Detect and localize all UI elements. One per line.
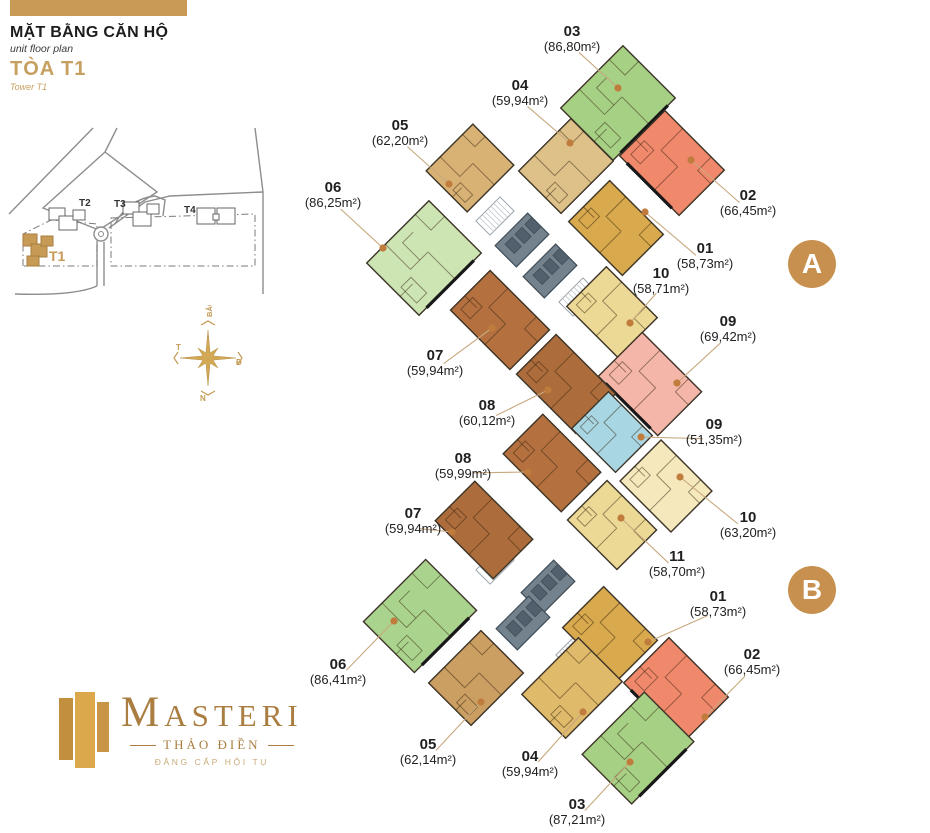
unit-dot-B-08	[524, 468, 531, 475]
unit-number-B-04: 04	[522, 748, 539, 765]
unit-dot-B-01	[644, 638, 651, 645]
unit-number-A-05: 05	[392, 117, 409, 134]
unit-number-A-07: 07	[427, 347, 444, 364]
unit-A-01	[569, 181, 664, 276]
unit-dot-M-09	[637, 433, 644, 440]
leader-line-A-08	[496, 390, 548, 416]
unit-number-A-01: 01	[697, 240, 714, 257]
unit-dot-A-07	[488, 324, 495, 331]
unit-area-B-04: (59,94m²)	[502, 764, 558, 779]
leader-line-B-01	[648, 616, 708, 642]
brand-logo: MASTERI THẢO ĐIỀN ĐẲNG CẤP HỘI TỤ	[57, 690, 303, 776]
unit-area-A-05: (62,20m²)	[372, 133, 428, 148]
unit-dot-B-03	[626, 758, 633, 765]
unit-number-A-06: 06	[325, 179, 342, 196]
unit-area-A-06: (86,25m²)	[305, 195, 361, 210]
wing-a-badge: A	[788, 240, 836, 288]
unit-number-B-01: 01	[710, 588, 727, 605]
floor-plan-page: MẶT BẰNG CĂN HỘ unit floor plan TÒA T1 T…	[0, 0, 930, 833]
unit-area-B-11: (58,70m²)	[649, 564, 705, 579]
unit-number-B-08: 08	[455, 450, 472, 467]
unit-dot-A-05	[445, 180, 452, 187]
unit-area-A-09: (69,42m²)	[700, 329, 756, 344]
unit-number-B-06: 06	[330, 656, 347, 673]
unit-dot-B-06	[390, 617, 397, 624]
unit-area-A-01: (58,73m²)	[677, 256, 733, 271]
unit-area-B-07: (59,94m²)	[385, 521, 441, 536]
logo-location: THẢO ĐIỀN	[121, 737, 303, 753]
logo-brand-name: MASTERI	[121, 690, 303, 735]
unit-area-A-08: (60,12m²)	[459, 413, 515, 428]
unit-area-M-10: (63,20m²)	[720, 525, 776, 540]
unit-number-B-11: 11	[669, 548, 685, 565]
unit-number-M-10: 10	[740, 509, 757, 526]
unit-number-B-05: 05	[420, 736, 437, 753]
unit-dot-M-10	[676, 473, 683, 480]
unit-dot-A-01	[641, 208, 648, 215]
unit-area-B-05: (62,14m²)	[400, 752, 456, 767]
unit-dot-A-10	[626, 319, 633, 326]
leader-line-A-07	[444, 328, 492, 364]
unit-number-A-02: 02	[740, 187, 757, 204]
unit-number-A-08: 08	[479, 397, 496, 414]
unit-number-M-09: 09	[706, 416, 723, 433]
leader-line-A-09	[677, 343, 720, 383]
logo-tagline: ĐẲNG CẤP HỘI TỤ	[121, 757, 303, 767]
unit-number-A-10: 10	[653, 265, 670, 282]
logo-text: MASTERI THẢO ĐIỀN ĐẲNG CẤP HỘI TỤ	[121, 690, 303, 767]
unit-area-A-03: (86,80m²)	[544, 39, 600, 54]
unit-dot-A-08	[544, 386, 551, 393]
unit-dot-B-02	[701, 713, 708, 720]
unit-area-A-02: (66,45m²)	[720, 203, 776, 218]
unit-dot-B-07	[448, 528, 455, 535]
unit-area-B-03: (87,21m²)	[549, 812, 605, 827]
unit-area-A-07: (59,94m²)	[407, 363, 463, 378]
unit-dot-A-09	[673, 379, 680, 386]
unit-dot-A-02	[687, 156, 694, 163]
wing-b-badge: B	[788, 566, 836, 614]
unit-area-B-08: (59,99m²)	[435, 466, 491, 481]
unit-number-B-03: 03	[569, 796, 586, 813]
unit-dot-A-04	[566, 139, 573, 146]
unit-area-B-06: (86,41m²)	[310, 672, 366, 687]
unit-dot-A-06	[379, 244, 386, 251]
unit-number-B-07: 07	[405, 505, 422, 522]
unit-area-A-04: (59,94m²)	[492, 93, 548, 108]
stair-block	[476, 197, 514, 235]
leader-line-A-04	[528, 106, 571, 143]
unit-number-A-04: 04	[512, 77, 529, 94]
unit-area-B-01: (58,73m²)	[690, 604, 746, 619]
unit-dot-B-11	[617, 514, 624, 521]
unit-area-A-10: (58,71m²)	[633, 281, 689, 296]
unit-area-M-09: (51,35m²)	[686, 432, 742, 447]
unit-dot-A-03	[614, 84, 621, 91]
unit-number-B-02: 02	[744, 646, 761, 663]
unit-number-A-03: 03	[564, 23, 581, 40]
unit-area-B-02: (66,45m²)	[724, 662, 780, 677]
unit-number-A-09: 09	[720, 313, 737, 330]
unit-dot-B-05	[477, 698, 484, 705]
leader-line-A-06	[341, 209, 384, 248]
logo-buildings-icon	[57, 690, 113, 776]
unit-dot-B-04	[579, 708, 586, 715]
